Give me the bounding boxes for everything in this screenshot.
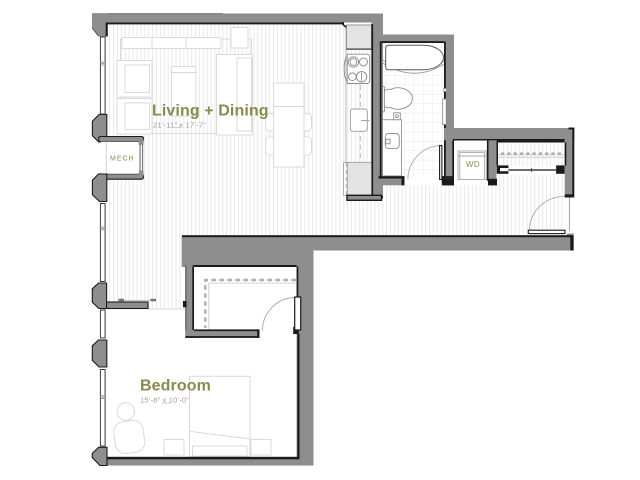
svg-text:MECH: MECH bbox=[110, 155, 135, 162]
svg-text:Living + Dining: Living + Dining bbox=[152, 103, 269, 120]
svg-text:Bedroom: Bedroom bbox=[140, 378, 211, 395]
svg-text:21’-11” x 17’-7”: 21’-11” x 17’-7” bbox=[153, 120, 206, 129]
svg-text:WD: WD bbox=[466, 160, 480, 169]
